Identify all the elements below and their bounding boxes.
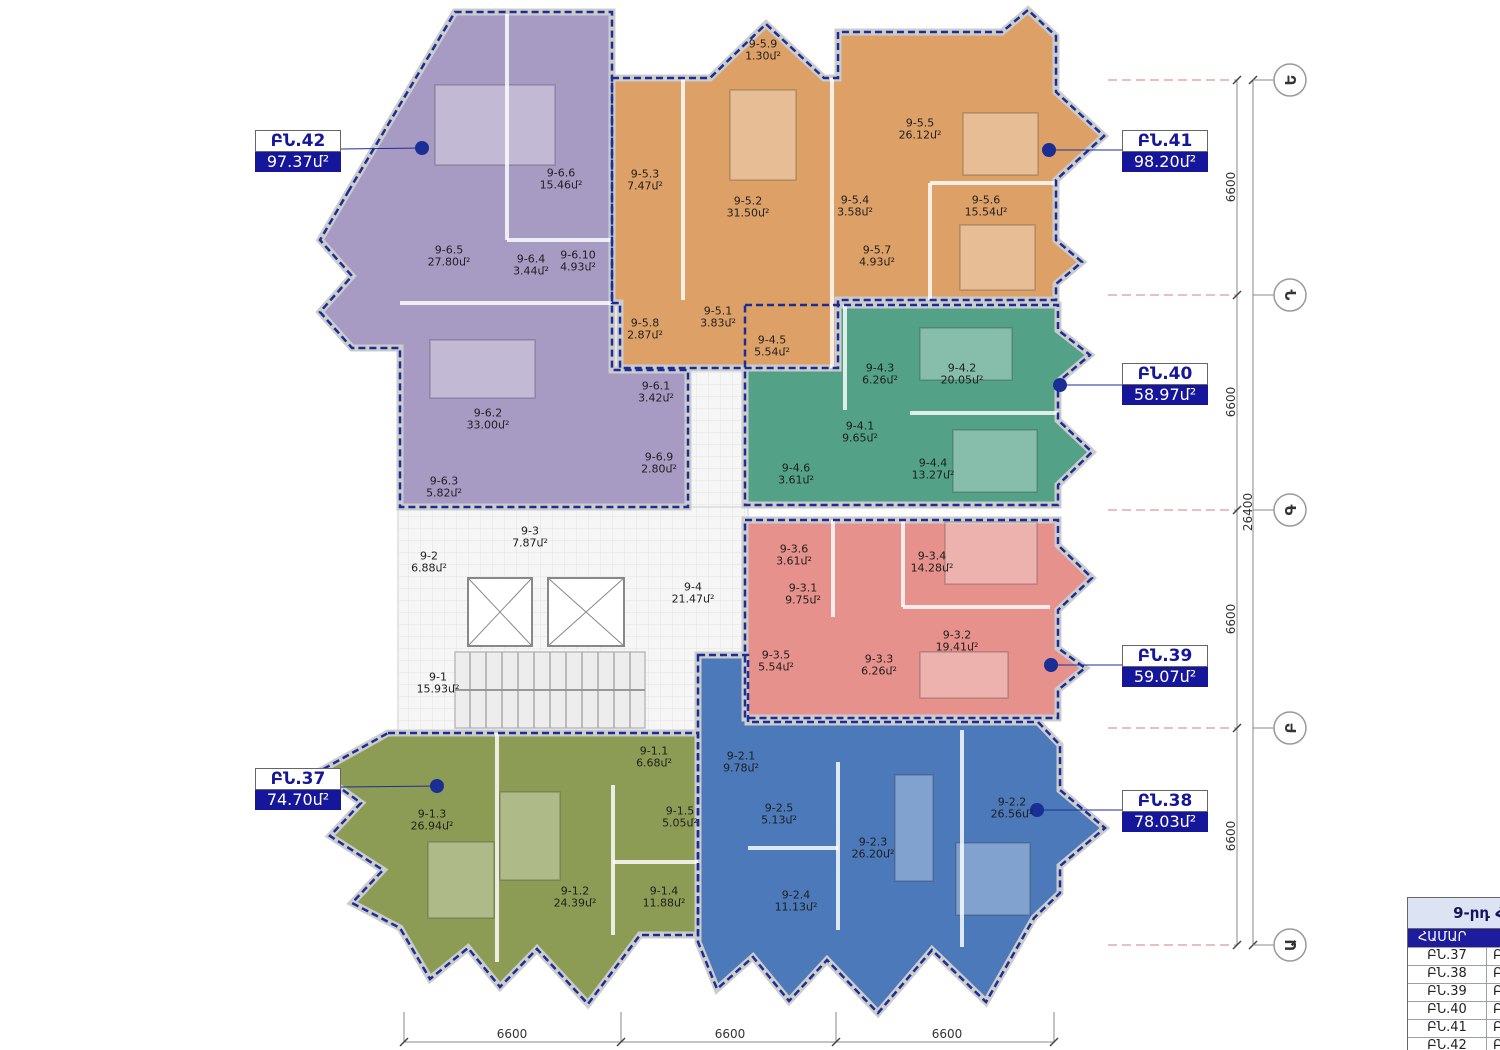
dimension-label: 6600: [497, 1027, 528, 1041]
table-row: ԲՆ.37ԲՆ: [1408, 947, 1500, 965]
room-label: 9-6.13.42մ²: [638, 381, 674, 406]
table-row: ԲՆ.42ԲՆ: [1408, 1037, 1500, 1050]
room-label: 9-37.87մ²: [512, 526, 548, 551]
room-label: 9-5.13.83մ²: [700, 306, 736, 331]
room-label: 9-3.63.61մ²: [776, 544, 812, 569]
apartment-id: ԲՆ.38: [1122, 790, 1208, 812]
room-label: 9-115.93մ²: [417, 672, 460, 697]
room-label: 9-3.219.41մ²: [936, 630, 979, 655]
room-label: 9-2.411.13մ²: [775, 890, 818, 915]
furniture-sofa: [920, 652, 1008, 698]
room-label: 9-5.43.58մ²: [837, 195, 873, 220]
apartment-id: ԲՆ.39: [1122, 645, 1208, 667]
staircase: [455, 652, 645, 728]
floor-plan-drawing: 6600 6600 6600 6600 26400 Ե Դ Գ Բ Ա 6600…: [0, 0, 1500, 1050]
furniture-sofa: [730, 90, 796, 180]
apartment-badge-bn41: ԲՆ.41 98.20մ²: [1122, 130, 1208, 172]
room-label: 9-5.615.54մ²: [965, 195, 1008, 220]
furniture-bed: [953, 430, 1037, 492]
room-label: 9-3.19.75մ²: [785, 583, 821, 608]
furniture-sofa: [430, 340, 535, 398]
apartment-area: 78.03մ²: [1122, 812, 1208, 832]
room-label: 9-6.35.82մ²: [426, 476, 462, 501]
apartment-badge-bn38: ԲՆ.38 78.03մ²: [1122, 790, 1208, 832]
room-label: 9-6.104.93մ²: [560, 250, 596, 275]
room-label: 9-1.326.94մ²: [411, 809, 454, 834]
table-row: ԲՆ.41ԲՆ: [1408, 1019, 1500, 1037]
furniture-bed: [945, 522, 1037, 584]
room-label: 9-3.414.28մ²: [911, 551, 954, 576]
furniture-sofa: [895, 775, 933, 881]
grid-axis-markers: Ե Դ Գ Բ Ա: [1274, 64, 1306, 961]
furniture-bed: [960, 225, 1035, 290]
room-label: 9-4.413.27մ²: [912, 458, 955, 483]
table-row: ԲՆ.40ԲՆ: [1408, 1001, 1500, 1019]
dimension-label: 6600: [1224, 604, 1238, 635]
room-label: 9-26.88մ²: [411, 551, 447, 576]
room-label: 9-6.92.80մ²: [641, 452, 677, 477]
room-label: 9-4.36.26մ²: [862, 363, 898, 388]
apartment-badge-bn42: ԲՆ.42 97.37մ²: [255, 130, 341, 172]
apartment-area: 98.20մ²: [1122, 152, 1208, 172]
room-label: 9-5.231.50մ²: [727, 196, 770, 221]
grid-axis-letter: Ա: [1282, 939, 1300, 951]
room-label: 9-6.615.46մ²: [540, 168, 583, 193]
furniture-bed: [956, 843, 1030, 915]
floor-legend-table: 9-րդ ՀԱՐԿԻ ՀԱՄԱՐ ԲՆ.37ԲՆ ԲՆ.38ԲՆ ԲՆ.39ԲՆ…: [1407, 897, 1500, 1050]
dimension-label: 6600: [932, 1027, 963, 1041]
apartment-area: 58.97մ²: [1122, 385, 1208, 405]
dimension-label: 6600: [1224, 172, 1238, 203]
room-label: 9-3.36.26մ²: [861, 654, 897, 679]
furniture-bed: [963, 113, 1038, 175]
apartment-id: ԲՆ.40: [1122, 363, 1208, 385]
room-label: 9-2.55.13մ²: [761, 803, 797, 828]
apartment-badge-bn37: ԲՆ.37 74.70մ²: [255, 768, 341, 810]
room-label: 9-6.527.80մ²: [428, 245, 471, 270]
dimension-label: 6600: [1224, 821, 1238, 852]
apartment-badge-bn40: ԲՆ.40 58.97մ²: [1122, 363, 1208, 405]
room-label: 9-4.220.05մ²: [941, 363, 984, 388]
dimension-label: 6600: [715, 1027, 746, 1041]
legend-title: 9-րդ ՀԱՐԿԻ: [1408, 898, 1500, 928]
room-label: 9-2.326.20մ²: [852, 837, 895, 862]
grid-axis-letter: Դ: [1282, 289, 1300, 300]
furniture-bed: [435, 85, 555, 165]
room-label: 9-1.411.88մ²: [643, 886, 686, 911]
room-label: 9-3.55.54մ²: [758, 650, 794, 675]
room-label: 9-5.91.30մ²: [745, 39, 781, 64]
grid-axis-letter: Ե: [1282, 75, 1300, 86]
room-label: 9-1.55.05մ²: [662, 806, 698, 831]
dimension-total-label: 26400: [1241, 493, 1255, 531]
legend-column-header: ՀԱՄԱՐ: [1408, 928, 1500, 947]
room-label: 9-5.37.47մ²: [627, 169, 663, 194]
apartment-area: 97.37մ²: [255, 152, 341, 172]
room-label: 9-5.526.12մ²: [899, 118, 942, 143]
room-label: 9-5.82.87մ²: [627, 318, 663, 343]
room-label: 9-6.233.00մ²: [467, 408, 510, 433]
room-label: 9-2.226.56մ²: [991, 797, 1034, 822]
apartment-id: ԲՆ.42: [255, 130, 341, 152]
furniture-bed: [428, 842, 494, 918]
room-label: 9-5.74.93մ²: [859, 245, 895, 270]
grid-axis-letter: Բ: [1282, 723, 1300, 734]
apartment-id: ԲՆ.37: [255, 768, 341, 790]
dimension-label: 6600: [1224, 387, 1238, 418]
grid-axis-letter: Գ: [1282, 504, 1300, 515]
room-label: 9-421.47մ²: [672, 582, 715, 607]
furniture-sofa: [500, 792, 560, 880]
apartment-area: 59.07մ²: [1122, 667, 1208, 687]
floor-plan: 6600 6600 6600 6600 26400 Ե Դ Գ Բ Ա 6600…: [0, 0, 1500, 1050]
room-label: 9-2.19.78մ²: [723, 751, 759, 776]
room-label: 9-1.224.39մ²: [554, 886, 597, 911]
dimension-lines-bottom: 6600 6600 6600: [400, 1012, 1058, 1046]
table-row: ԲՆ.39ԲՆ: [1408, 983, 1500, 1001]
apartment-id: ԲՆ.41: [1122, 130, 1208, 152]
room-label: 9-4.19.65մ²: [842, 421, 878, 446]
room-label: 9-4.63.61մ²: [778, 463, 814, 488]
table-row: ԲՆ.38ԲՆ: [1408, 965, 1500, 983]
room-label: 9-4.55.54մ²: [754, 335, 790, 360]
room-label: 9-1.16.68մ²: [636, 746, 672, 771]
room-label: 9-6.43.44մ²: [513, 254, 549, 279]
apartment-area: 74.70մ²: [255, 790, 341, 810]
apartment-badge-bn39: ԲՆ.39 59.07մ²: [1122, 645, 1208, 687]
